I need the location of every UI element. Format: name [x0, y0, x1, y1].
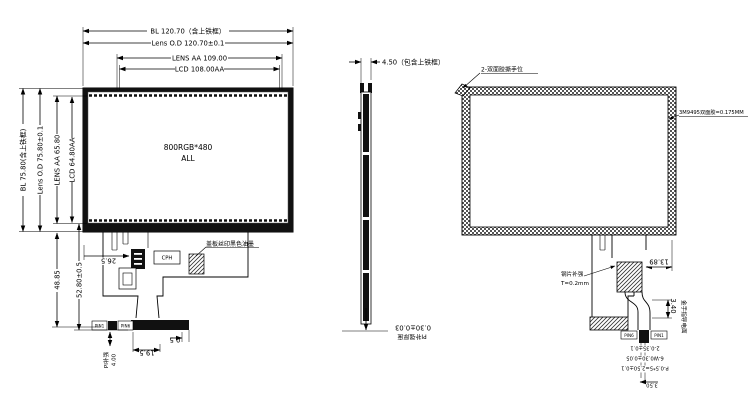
fpc-part-label-box: CPH [154, 251, 180, 264]
fpc-small-box [119, 268, 136, 289]
dim-lcd-v-label: LCD 64.80AA [68, 137, 76, 182]
tape-note-label: 3M9495双面胶=0.175MM [679, 108, 744, 116]
dim-lens-aa-v-label: LENS AA 65.80 [53, 135, 61, 186]
steel-note-line1: 钢片补强 [561, 270, 584, 278]
side-fpc-stiffener-label: PI补强厚度 [397, 333, 426, 341]
gold-finger-label: 金手指导电面 [680, 300, 688, 334]
dim-bl-vertical: BL 75.80(含上铁框) [18, 89, 27, 232]
dim-lcd-horizontal: LCD 108.00AA [120, 65, 280, 74]
dim-pad-label: 6-W0.30±0.05 [626, 355, 664, 361]
dim-fpc-thickness: 0.30±0.03 PI补强厚度 [342, 308, 431, 341]
dim-lens-od-h-label: Lens O.D 120.70±0.1 [152, 40, 225, 48]
dim-thickness-label: 4.50（包含上铁框） [382, 58, 445, 67]
dim-lens-aa-h-label: LENS AA 109.00 [172, 55, 227, 63]
dim-pitch-label: P-0.5*5=2.50±0.1 [621, 365, 669, 371]
back-steel-note: 钢片补强 T=0.2mm [560, 266, 615, 287]
pi-stiffener-label: PI补强 [102, 351, 110, 368]
dim-0-5: 0.5 [170, 330, 189, 344]
front-fpc-tabs [112, 232, 148, 250]
back-bottom-stiffener [590, 317, 628, 330]
dim-lcd-vertical: LCD 64.80AA [68, 97, 77, 223]
dim-26-5-label: 26.5 [101, 257, 116, 265]
fpc-hatched-component [189, 254, 204, 274]
engineering-drawing-canvas: 800RGB*480 ALL BL 120.70（含上铁框） Lens O.D … [0, 0, 750, 408]
side-view: 4.50（包含上铁框） 0.30±0.03 PI补强厚度 [342, 58, 445, 341]
back-pin1-label: PIN1 [654, 333, 664, 338]
dim-lcd-h-label: LCD 108.00AA [175, 66, 225, 74]
back-view: 2-双面胶撕手位 3M9495双面胶=0.175MM PIN6 PIN1 [455, 66, 748, 388]
dim-lens-od-v-label: Lens O.D 75.80±0.1 [36, 126, 44, 194]
dim-19-5-label: 19.5 [139, 349, 154, 357]
dim-13-89-label: 13.89 [649, 258, 668, 266]
dim-19-5: 19.5 [133, 332, 160, 357]
panel-resolution-text: 800RGB*480 [164, 143, 213, 152]
front-ink-note: 盖板丝印黑色油墨 [196, 240, 259, 256]
back-tape-border [462, 87, 676, 235]
dim-13-89: 13.89 [646, 240, 672, 271]
dim-end-label: 3.50 [646, 382, 658, 388]
dim-lens-od-horizontal: Lens O.D 120.70±0.1 [83, 39, 293, 48]
panel-all-text: ALL [181, 154, 195, 163]
back-fpc: PIN6 PIN1 钢片补强 T=0.2mm 13.89 3.40 [560, 235, 688, 388]
back-steel-stiffener [617, 262, 642, 292]
dim-0-5-label: 0.5 [170, 336, 181, 344]
dim-bl-v-label: BL 75.80(含上铁框) [18, 128, 27, 191]
ink-note-label: 盖板丝印黑色油墨 [206, 240, 254, 248]
back-tape-note: 3M9495双面胶=0.175MM [669, 108, 748, 119]
back-pin6-label: PIN6 [624, 333, 634, 338]
dim-hole-label: 2-0.35±0.1 [630, 345, 659, 351]
tear-tab-note-label: 2-双面胶撕手位 [481, 66, 523, 74]
dim-fpc-thickness-label: 0.30±0.03 [395, 324, 431, 332]
back-connector [639, 330, 649, 343]
back-connector-dims: 2-0.35±0.1 6-W0.30±0.05 P-0.5*5=2.50±0.1… [620, 343, 671, 388]
dim-lens-od-vertical: Lens O.D 75.80±0.1 [36, 89, 45, 232]
dim-4-00-label: 4.00 [112, 353, 118, 366]
dim-pi-4-00: PI补强 4.00 [102, 332, 118, 368]
front-pin1-label: PIN1 [95, 324, 105, 329]
dim-48-85-label: 48.85 [53, 270, 61, 289]
dim-lens-aa-vertical: LENS AA 65.80 [53, 96, 62, 224]
dim-thickness: 4.50（包含上铁框） [349, 58, 445, 85]
fpc-part-label: CPH [162, 256, 173, 262]
steel-note-line2: T=0.2mm [560, 281, 589, 287]
front-pin-labels: PIN1 PIN6 [92, 321, 133, 330]
dim-52-80-label: 52.80±0.5 [75, 262, 83, 298]
dim-lens-aa-horizontal: LENS AA 109.00 [117, 54, 282, 63]
back-fpc-tail [625, 292, 650, 330]
side-profile [358, 83, 372, 324]
lcd-module-drawing: 800RGB*480 ALL BL 120.70（含上铁框） Lens O.D … [0, 0, 750, 408]
front-pin6-label: PIN6 [121, 324, 131, 329]
fpc-connector-bar [131, 320, 189, 330]
dim-26-5: 26.5 [84, 245, 129, 265]
dim-bl-horizontal: BL 120.70（含上铁框） [83, 27, 293, 36]
front-view: 800RGB*480 ALL BL 120.70（含上铁框） Lens O.D … [18, 27, 293, 369]
dim-bl-h-label: BL 120.70（含上铁框） [150, 27, 225, 36]
dim-3-40-label: 3.40 [669, 298, 677, 313]
dim-3-40: 3.40 [652, 298, 677, 318]
